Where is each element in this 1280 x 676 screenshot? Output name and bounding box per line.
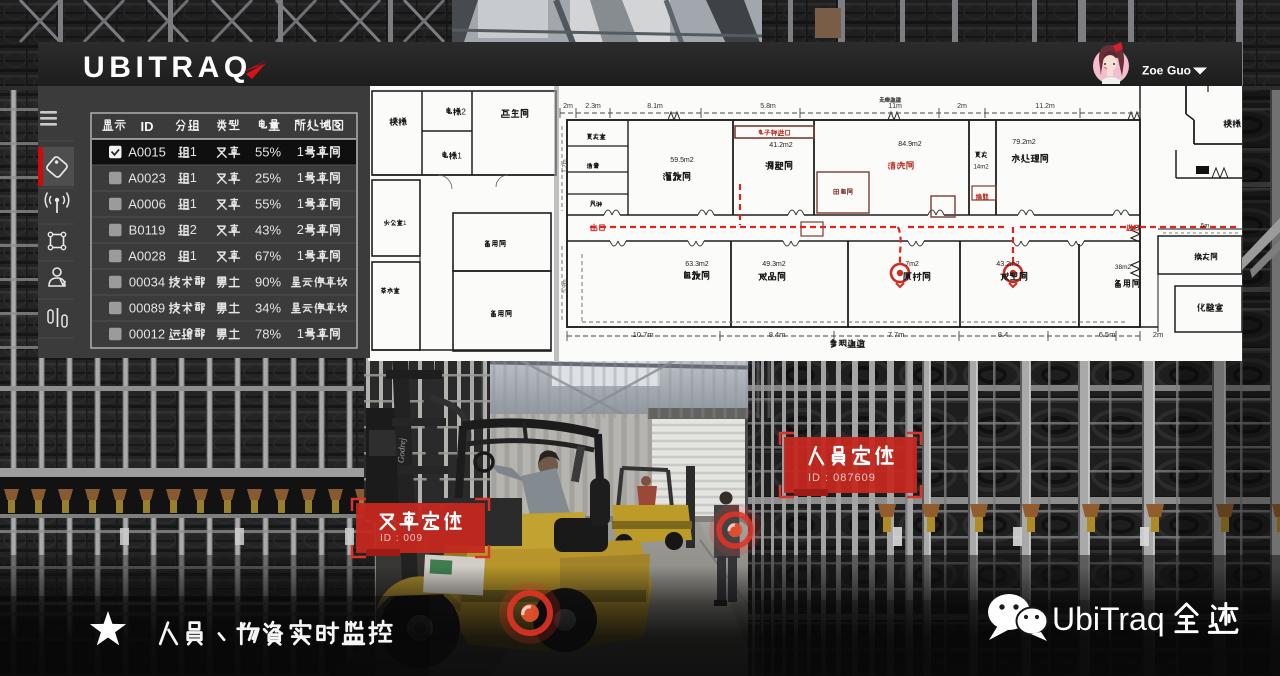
svg-text:2: 2	[1128, 264, 1132, 271]
svg-text:m: m	[657, 102, 663, 110]
svg-text:m: m	[770, 102, 776, 110]
svg-text:m: m	[1157, 330, 1163, 339]
svg-text:2: 2	[789, 141, 793, 149]
svg-text:2: 2	[782, 260, 786, 268]
svg-text:2: 2	[1032, 138, 1036, 146]
svg-text:1: 1	[457, 150, 462, 160]
svg-text:ID : 009: ID : 009	[380, 533, 423, 544]
svg-text:UbiTraq: UbiTraq	[1052, 601, 1165, 637]
svg-text:2: 2	[915, 260, 919, 268]
svg-text:m: m	[562, 159, 569, 164]
svg-text:2: 2	[985, 164, 989, 171]
svg-text:m: m	[961, 102, 967, 110]
svg-text:m: m	[1109, 330, 1115, 339]
svg-text:4: 4	[1004, 330, 1009, 339]
svg-text:2: 2	[1016, 260, 1020, 268]
svg-text:m: m	[1204, 223, 1209, 230]
svg-text:ID : 087609: ID : 087609	[808, 472, 876, 484]
svg-text:m: m	[779, 330, 785, 339]
svg-text:2: 2	[690, 156, 694, 164]
svg-text:m: m	[647, 330, 653, 339]
svg-text:m: m	[1049, 102, 1055, 110]
svg-text:m: m	[896, 102, 902, 110]
svg-text:m: m	[898, 330, 904, 339]
svg-text:2: 2	[705, 260, 709, 268]
svg-text:2: 2	[461, 106, 466, 116]
svg-text:1: 1	[403, 220, 407, 227]
svg-text:2: 2	[918, 140, 922, 148]
svg-text:m: m	[567, 102, 573, 110]
svg-text:m: m	[562, 279, 569, 284]
svg-text:m: m	[595, 102, 601, 110]
